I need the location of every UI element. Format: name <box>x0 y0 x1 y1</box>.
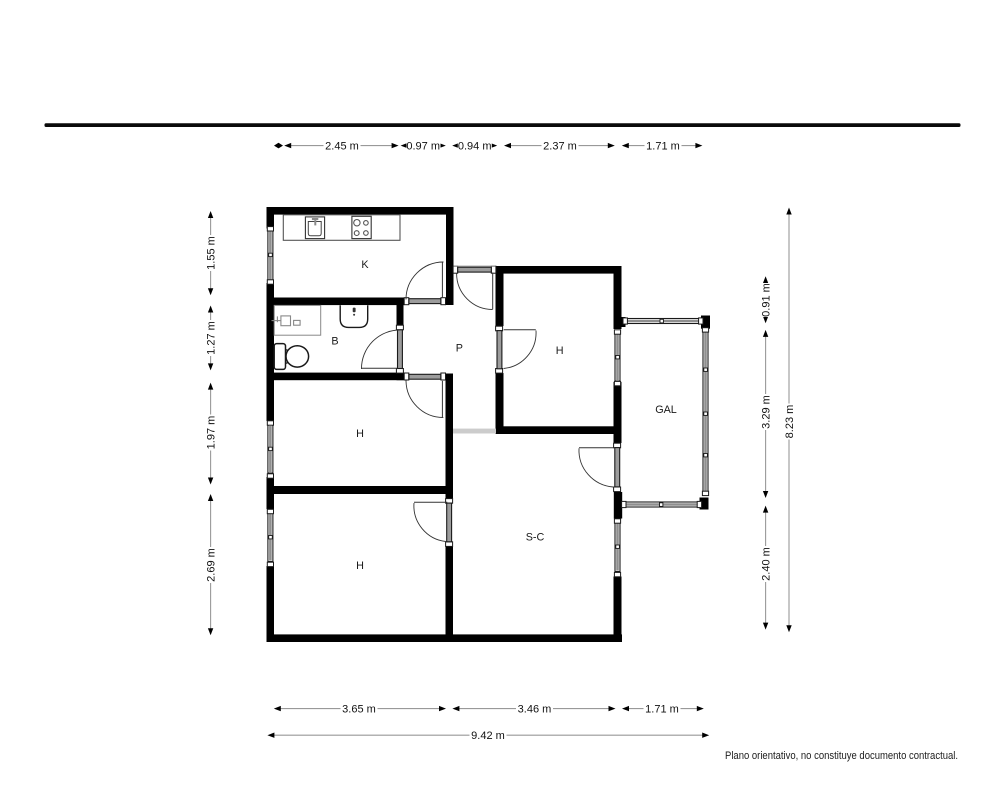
svg-text:1.97 m: 1.97 m <box>205 416 217 450</box>
svg-text:9.42 m: 9.42 m <box>471 730 505 742</box>
svg-text:8.23 m: 8.23 m <box>784 405 796 439</box>
svg-text:H: H <box>356 560 364 572</box>
svg-text:0.94 m: 0.94 m <box>458 141 492 153</box>
svg-text:3.65 m: 3.65 m <box>342 704 376 716</box>
svg-text:P: P <box>456 342 463 354</box>
svg-text:H: H <box>556 345 564 357</box>
svg-text:3.29 m: 3.29 m <box>760 395 772 429</box>
svg-text:1.71 m: 1.71 m <box>645 704 679 716</box>
svg-text:0.97 m: 0.97 m <box>406 141 440 153</box>
svg-text:1.55 m: 1.55 m <box>205 236 217 270</box>
svg-text:1.27 m: 1.27 m <box>205 321 217 355</box>
svg-text:1.71 m: 1.71 m <box>646 141 680 153</box>
svg-text:2.40 m: 2.40 m <box>760 547 772 581</box>
svg-text:B: B <box>331 336 338 348</box>
svg-text:K: K <box>361 259 369 271</box>
svg-text:S-C: S-C <box>526 531 545 543</box>
svg-text:GAL: GAL <box>655 404 677 416</box>
svg-text:2.69 m: 2.69 m <box>205 548 217 582</box>
svg-text:2.45 m: 2.45 m <box>325 141 359 153</box>
svg-text:2.37 m: 2.37 m <box>543 141 577 153</box>
svg-text:0.91 m: 0.91 m <box>760 283 772 317</box>
svg-text:3.46 m: 3.46 m <box>518 704 552 716</box>
svg-text:H: H <box>356 428 364 440</box>
svg-text:Plano orientativo, no constitu: Plano orientativo, no constituye documen… <box>725 750 958 762</box>
